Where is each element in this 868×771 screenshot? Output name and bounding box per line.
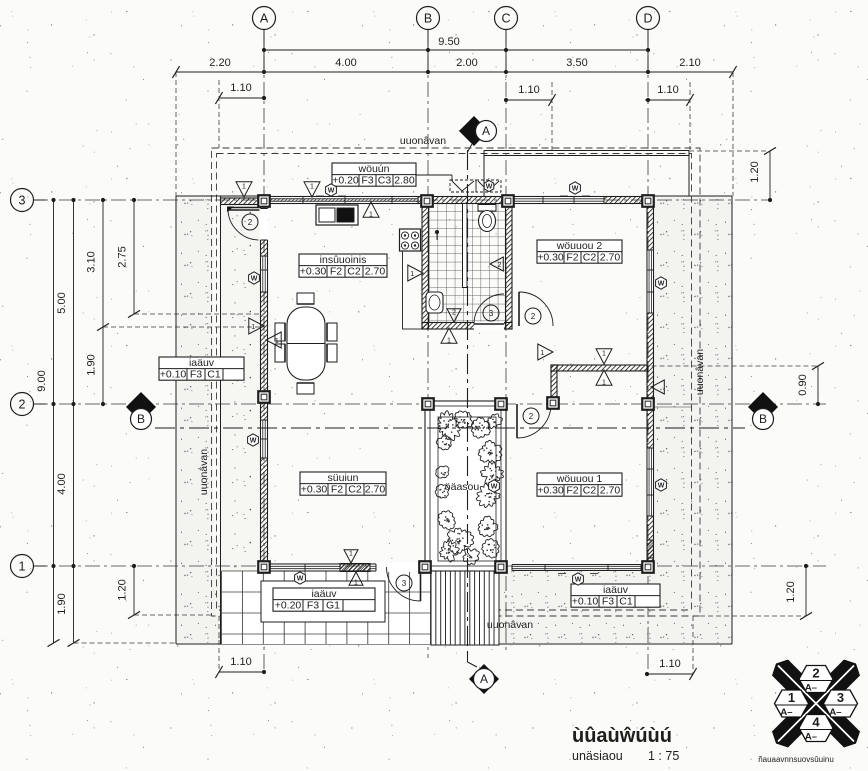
svg-text:uuonâvan: uuonâvan: [694, 349, 706, 395]
svg-text:9.50: 9.50: [438, 36, 459, 48]
svg-text:2.00: 2.00: [456, 57, 477, 69]
svg-text:uuonâvan: uuonâvan: [198, 449, 210, 495]
svg-text:1.20: 1.20: [117, 579, 129, 600]
svg-text:3.50: 3.50: [566, 57, 587, 69]
svg-text:2: 2: [497, 262, 501, 269]
svg-text:2: 2: [452, 310, 456, 317]
svg-text:C1: C1: [207, 369, 221, 381]
svg-text:3: 3: [489, 309, 494, 318]
svg-text:2.80: 2.80: [394, 175, 415, 187]
svg-text:9.00: 9.00: [36, 370, 48, 391]
svg-text:C2: C2: [583, 252, 597, 264]
svg-text:B: B: [759, 412, 767, 426]
svg-text:3.10: 3.10: [86, 251, 98, 272]
svg-text:G1: G1: [326, 600, 340, 612]
svg-text:W: W: [328, 188, 335, 195]
svg-text:1: 1: [19, 559, 26, 573]
svg-text:A–: A–: [829, 707, 841, 718]
svg-text:1: 1: [310, 184, 314, 191]
svg-text:F3: F3: [307, 600, 319, 612]
svg-text:3: 3: [19, 193, 26, 207]
svg-text:W: W: [491, 484, 498, 491]
svg-text:B: B: [137, 412, 145, 426]
svg-text:1: 1: [242, 184, 246, 191]
svg-text:B: B: [424, 11, 432, 25]
svg-text:1.10: 1.10: [230, 656, 251, 668]
svg-text:2.20: 2.20: [209, 57, 230, 69]
svg-text:2.70: 2.70: [600, 485, 621, 497]
svg-text:süuiun: süuiun: [328, 472, 359, 484]
svg-text:0.90: 0.90: [797, 374, 809, 395]
svg-text:1.90: 1.90: [56, 593, 68, 614]
svg-text:W: W: [575, 577, 582, 584]
svg-text:wöuún: wöuún: [358, 163, 390, 175]
svg-text:iaäuv: iaäuv: [603, 584, 629, 596]
svg-text:1: 1: [349, 551, 353, 558]
svg-text:3: 3: [837, 690, 844, 705]
svg-text:1: 1: [788, 690, 795, 705]
svg-text:F3: F3: [361, 175, 373, 187]
svg-text:A–: A–: [805, 683, 817, 694]
svg-text:4: 4: [812, 715, 820, 730]
svg-text:W: W: [250, 438, 257, 445]
svg-text:1.20: 1.20: [785, 581, 797, 602]
svg-text:2: 2: [812, 666, 819, 681]
svg-text:wöuuou 2: wöuuou 2: [556, 240, 603, 252]
svg-text:uuonâvan: uuonâvan: [400, 135, 446, 147]
svg-text:1: 1: [540, 350, 544, 357]
svg-text:1: 1: [369, 211, 373, 218]
svg-text:iaäuv: iaäuv: [311, 588, 337, 600]
svg-text:1 : 75: 1 : 75: [648, 749, 679, 763]
svg-text:+0.20: +0.20: [332, 175, 359, 187]
svg-text:C2: C2: [348, 484, 362, 496]
svg-text:C2: C2: [347, 266, 361, 278]
svg-text:1: 1: [410, 271, 414, 278]
svg-text:C: C: [501, 11, 510, 25]
svg-text:insûuoinis: insûuoinis: [320, 254, 367, 266]
svg-text:1.90: 1.90: [86, 354, 98, 375]
svg-text:A–: A–: [805, 732, 817, 743]
svg-text:5.00: 5.00: [56, 292, 68, 313]
svg-text:A: A: [482, 124, 490, 138]
svg-text:1.20: 1.20: [749, 161, 761, 182]
svg-text:1.10: 1.10: [657, 84, 678, 96]
svg-text:4.00: 4.00: [335, 57, 356, 69]
svg-text:W: W: [297, 576, 304, 583]
svg-text:C3: C3: [378, 175, 392, 187]
svg-text:unäsiaou: unäsiaou: [572, 749, 623, 763]
svg-text:+0.20: +0.20: [275, 600, 302, 612]
svg-text:C2: C2: [583, 485, 597, 497]
svg-text:ùûaùŵúùú: ùûaùŵúùú: [572, 725, 672, 747]
svg-text:1.10: 1.10: [518, 84, 539, 96]
svg-text:2: 2: [19, 397, 26, 411]
svg-text:A: A: [480, 672, 488, 686]
svg-text:1: 1: [354, 580, 358, 587]
svg-text:1.10: 1.10: [230, 82, 251, 94]
svg-text:2: 2: [529, 412, 534, 421]
svg-text:W: W: [658, 281, 665, 288]
svg-text:1: 1: [447, 337, 451, 344]
svg-text:1: 1: [251, 324, 255, 331]
svg-text:F2: F2: [566, 252, 578, 264]
svg-text:A–: A–: [780, 707, 792, 718]
svg-text:+0.10: +0.10: [572, 596, 599, 608]
svg-text:iaäuv: iaäuv: [189, 357, 215, 369]
svg-text:F3: F3: [190, 369, 202, 381]
svg-text:2: 2: [248, 218, 253, 227]
svg-text:2.70: 2.70: [365, 266, 386, 278]
svg-text:C1: C1: [619, 596, 633, 608]
svg-text:2.10: 2.10: [679, 57, 700, 69]
svg-text:D: D: [643, 11, 652, 25]
svg-text:+0.30: +0.30: [301, 484, 328, 496]
svg-text:F2: F2: [566, 485, 578, 497]
svg-text:A: A: [260, 11, 269, 25]
svg-text:4.00: 4.00: [56, 473, 68, 494]
svg-text:öäasou: öäasou: [445, 481, 480, 493]
svg-text:ñauaavnnsuovsûuinu: ñauaavnnsuovsûuinu: [758, 755, 834, 764]
svg-text:1: 1: [602, 351, 606, 358]
svg-text:+0.10: +0.10: [160, 369, 187, 381]
svg-text:W: W: [572, 186, 579, 193]
svg-text:2.70: 2.70: [365, 484, 386, 496]
svg-text:1.10: 1.10: [659, 658, 680, 670]
svg-text:2.75: 2.75: [117, 246, 129, 267]
svg-text:uuonâvan: uuonâvan: [487, 619, 533, 631]
svg-text:3: 3: [402, 579, 407, 588]
svg-text:wöuuou 1: wöuuou 1: [556, 473, 603, 485]
svg-text:W: W: [658, 483, 665, 490]
svg-text:+0.30: +0.30: [537, 252, 564, 264]
svg-text:F3: F3: [602, 596, 614, 608]
svg-text:F2: F2: [330, 266, 342, 278]
svg-text:W: W: [486, 184, 493, 191]
svg-text:1: 1: [602, 379, 606, 386]
svg-text:1: 1: [275, 338, 279, 345]
svg-text:2.70: 2.70: [600, 252, 621, 264]
svg-text:+0.30: +0.30: [300, 266, 327, 278]
svg-text:2: 2: [531, 312, 536, 321]
svg-text:F2: F2: [331, 484, 343, 496]
svg-text:W: W: [251, 276, 258, 283]
svg-text:+0.30: +0.30: [537, 485, 564, 497]
